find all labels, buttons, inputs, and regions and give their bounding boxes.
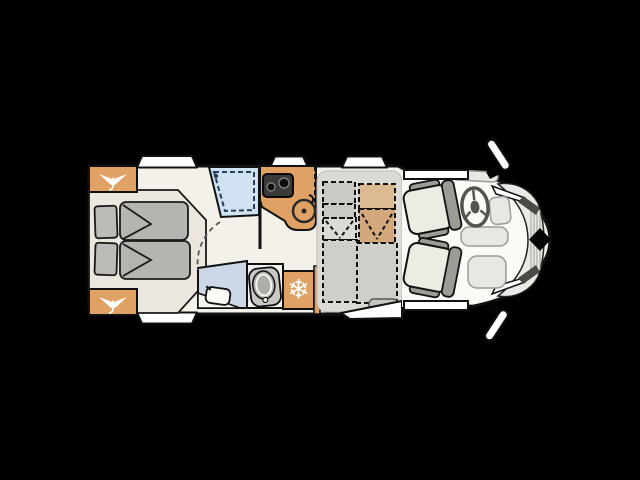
cab-door-window-top <box>404 170 468 179</box>
belted-seat-right <box>359 209 395 243</box>
floorplan-canvas: ❄ <box>0 0 640 480</box>
toilet <box>248 266 282 307</box>
fridge: ❄ <box>283 266 320 314</box>
driver-cab <box>401 138 551 342</box>
motorhome-floorplan: ❄ <box>0 0 640 480</box>
cab-door-window-bottom <box>404 301 468 310</box>
dinette-table <box>359 184 395 209</box>
bench-headrest-left <box>323 182 355 204</box>
window-bedroom-top <box>137 156 197 168</box>
window-bedroom-bottom <box>137 313 197 324</box>
flush-button <box>263 297 268 302</box>
bed-lower <box>94 241 190 279</box>
wardrobe-top <box>89 166 137 192</box>
bench-long-right <box>357 243 397 303</box>
console-upper <box>489 196 512 225</box>
snowflake-icon: ❄ <box>287 275 310 306</box>
wardrobe-bottom <box>89 289 137 315</box>
bed-upper <box>94 202 188 240</box>
burner-left <box>267 183 275 191</box>
window-dinette-top <box>342 157 387 168</box>
bench-cushion-left <box>323 204 355 218</box>
console-center <box>461 227 508 246</box>
burner-right <box>279 178 289 188</box>
washbasin <box>204 286 231 305</box>
duvet <box>120 241 190 279</box>
pillow <box>94 206 117 239</box>
glovebox <box>468 256 506 288</box>
dinette <box>317 171 402 313</box>
hob-two-burner <box>263 174 293 197</box>
shower-head-icon <box>214 174 218 178</box>
pillow <box>94 243 117 276</box>
mirror-top <box>485 138 511 179</box>
mirror-bottom <box>483 301 509 342</box>
bench-long-left <box>323 240 357 302</box>
